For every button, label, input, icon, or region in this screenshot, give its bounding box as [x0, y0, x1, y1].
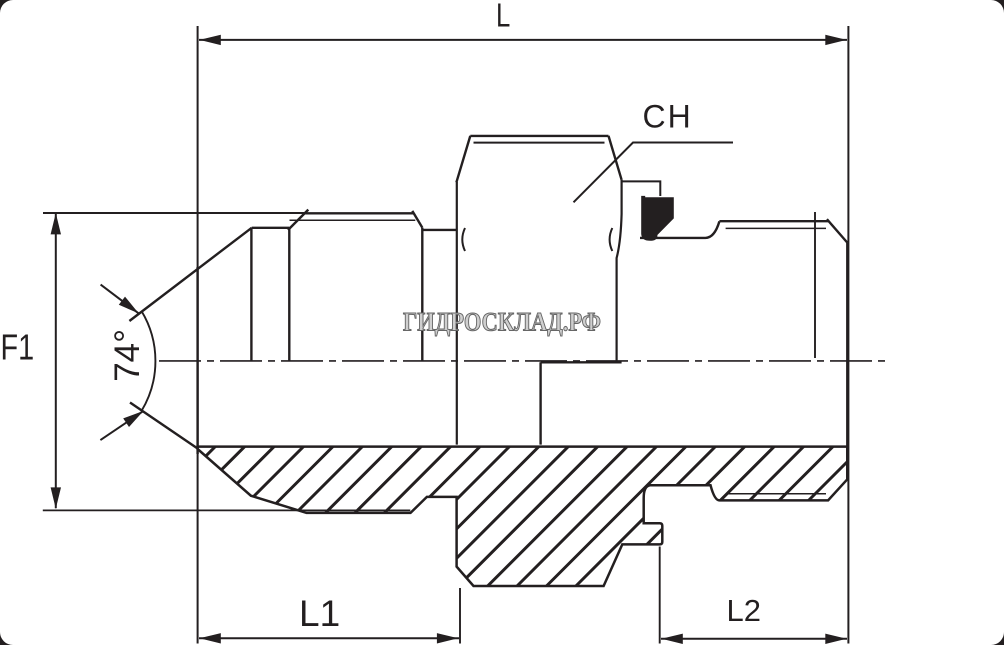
svg-text:CH: CH	[643, 99, 693, 135]
svg-text:L1: L1	[299, 593, 340, 634]
svg-text:F1: F1	[1, 326, 35, 367]
svg-text:74°: 74°	[108, 329, 147, 382]
svg-text:ГИДРОСКЛАД.РФ: ГИДРОСКЛАД.РФ	[403, 307, 601, 336]
svg-text:L: L	[496, 0, 510, 34]
svg-text:L2: L2	[727, 593, 761, 628]
